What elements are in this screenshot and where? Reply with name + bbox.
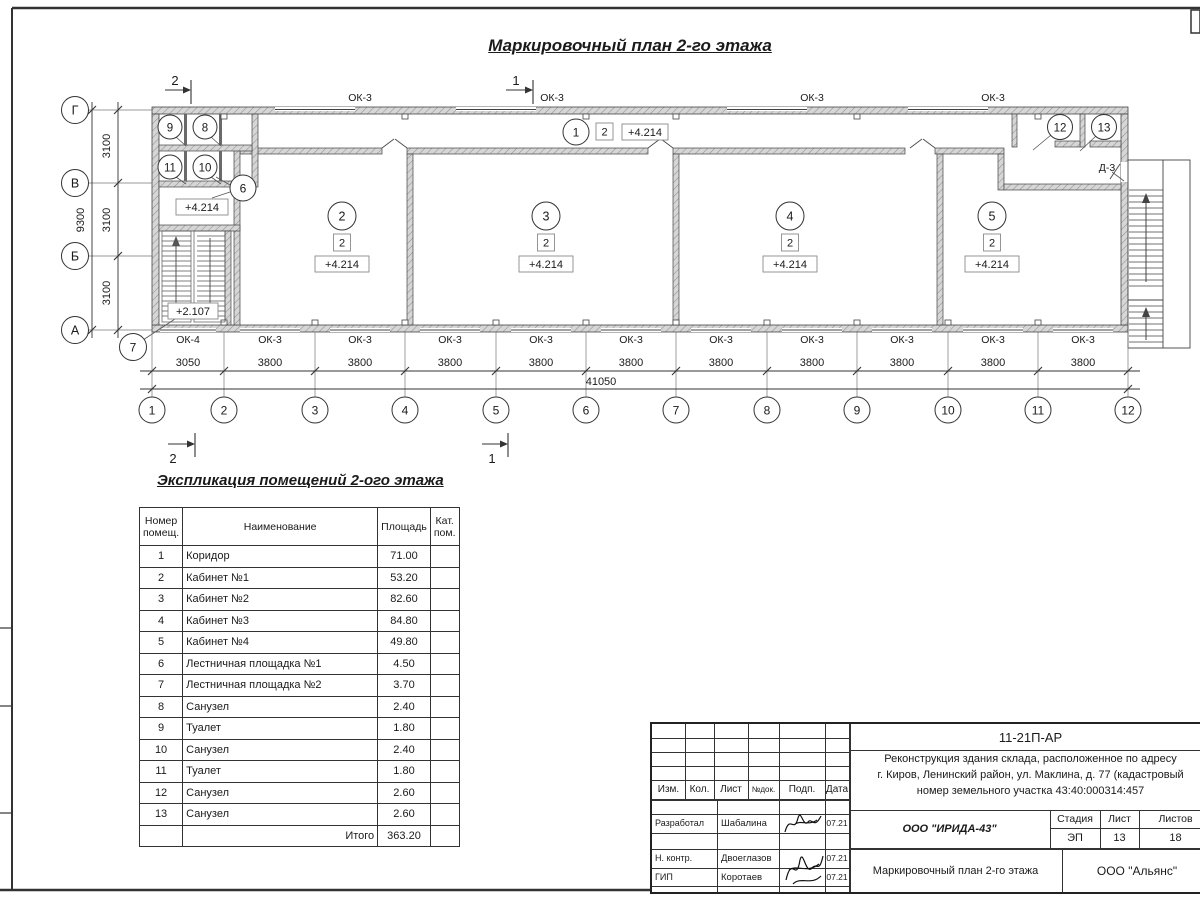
section-2-bottom-label: 2 <box>169 451 176 466</box>
tb-row3-role: ГИП <box>652 868 720 886</box>
category-mark: 2 <box>601 127 607 139</box>
total-area: 363.20 <box>378 825 431 847</box>
room-name: Санузел <box>183 739 378 761</box>
elevation-mark: +4.214 <box>529 259 563 271</box>
room-number: 10 <box>199 163 212 175</box>
axis-letter: А <box>71 324 80 338</box>
axis-number: 11 <box>1032 404 1045 418</box>
table-row: 12Санузел2.60 <box>140 782 460 804</box>
room-area: 2.40 <box>378 696 431 718</box>
h-dim: 3050 <box>176 357 200 369</box>
room-name: Санузел <box>183 804 378 826</box>
room-name: Туалет <box>183 718 378 740</box>
table-row: 8Санузел2.40 <box>140 696 460 718</box>
schedule-total-row: Итого 363.20 <box>140 825 460 847</box>
tb-col-kol: Кол. <box>685 780 714 799</box>
room-number: 9 <box>167 123 173 135</box>
tb-sheets-value: 18 <box>1139 828 1200 848</box>
elevation-mark: +4.214 <box>628 127 662 139</box>
room-cat <box>430 567 459 589</box>
axis-number: 7 <box>673 404 680 418</box>
axis-number: 5 <box>493 404 500 418</box>
window-label: ОК-3 <box>1071 334 1095 346</box>
tb-col-dok: №док. <box>748 780 779 799</box>
tb-row2-role: Н. контр. <box>652 849 720 868</box>
room-cat <box>430 610 459 632</box>
h-dim: 3800 <box>529 357 553 369</box>
table-row: 4Кабинет №384.80 <box>140 610 460 632</box>
h-dim: 3800 <box>800 357 824 369</box>
category-mark: 2 <box>989 238 995 250</box>
room-cat <box>430 675 459 697</box>
room-number: 1 <box>573 126 580 140</box>
axis-letter: Г <box>72 104 79 118</box>
room-area: 82.60 <box>378 589 431 611</box>
category-mark: 2 <box>543 238 549 250</box>
room-num: 1 <box>140 546 183 568</box>
room-number: 11 <box>164 163 176 175</box>
room-number: 5 <box>989 210 996 224</box>
window-label: ОК-3 <box>438 334 462 346</box>
axis-number: 8 <box>764 404 771 418</box>
tb-sheet-label: Лист <box>1100 810 1139 828</box>
tb-company: ООО "ИРИДА-43" <box>849 810 1050 848</box>
title-block: Изм. Кол. Лист №док. Подп. Дата Разработ… <box>650 722 1200 894</box>
room-number: 12 <box>1054 123 1067 135</box>
room-name: Кабинет №3 <box>183 610 378 632</box>
tb-doc-title: Маркировочный план 2-го этажа <box>849 850 1062 892</box>
window-label: ОК-3 <box>348 92 372 104</box>
tb-row1-date: 07.21 <box>825 814 849 833</box>
room-area: 1.80 <box>378 718 431 740</box>
table-row: 1Коридор71.00 <box>140 546 460 568</box>
room-cat <box>430 632 459 654</box>
room-num: 4 <box>140 610 183 632</box>
axis-letter: Б <box>71 250 79 264</box>
table-row: 13Санузел2.60 <box>140 804 460 826</box>
room-cat <box>430 739 459 761</box>
room-cat <box>430 653 459 675</box>
window-label: ОК-3 <box>890 334 914 346</box>
tb-row3-name: Коротаев <box>718 868 782 886</box>
room-area: 71.00 <box>378 546 431 568</box>
room-cat <box>430 782 459 804</box>
room-cat <box>430 546 459 568</box>
room-number: 7 <box>130 341 137 355</box>
window-label: ОК-3 <box>540 92 564 104</box>
room-name: Лестничная площадка №1 <box>183 653 378 675</box>
tb-sheet-value: 13 <box>1100 828 1139 848</box>
h-dim: 3800 <box>348 357 372 369</box>
room-num: 10 <box>140 739 183 761</box>
tb-col-data: Дата <box>825 780 849 799</box>
room-num: 2 <box>140 567 183 589</box>
axis-number: 9 <box>854 404 861 418</box>
room-number: 2 <box>339 210 346 224</box>
room-number: 8 <box>202 123 208 135</box>
axis-number-bubbles <box>139 397 1141 423</box>
category-mark: 2 <box>339 238 345 250</box>
room-area: 4.50 <box>378 653 431 675</box>
axis-letter: В <box>71 177 79 191</box>
axis-number: 6 <box>583 404 590 418</box>
v-dim: 3100 <box>101 208 113 232</box>
interior-walls <box>159 114 1121 325</box>
h-dim: 3800 <box>438 357 462 369</box>
room-num: 6 <box>140 653 183 675</box>
window-label: ОК-3 <box>529 334 553 346</box>
room-area: 1.80 <box>378 761 431 783</box>
col-header-num: Номер помещ. <box>140 508 183 546</box>
room-name: Кабинет №1 <box>183 567 378 589</box>
window-label: ОК-3 <box>709 334 733 346</box>
room-name: Кабинет №2 <box>183 589 378 611</box>
elevation-mark: +2.107 <box>176 306 210 318</box>
plan-title: Маркировочный план 2-го этажа <box>430 36 830 56</box>
v-dim: 3100 <box>101 281 113 305</box>
room-name: Лестничная площадка №2 <box>183 675 378 697</box>
table-row: 7Лестничная площадка №23.70 <box>140 675 460 697</box>
room-num: 5 <box>140 632 183 654</box>
axis-number: 3 <box>312 404 319 418</box>
window-label: ОК-3 <box>981 334 1005 346</box>
signature-1 <box>781 810 825 836</box>
room-number: 6 <box>240 182 247 196</box>
table-row: 11Туалет1.80 <box>140 761 460 783</box>
v-dim: 3100 <box>101 134 113 158</box>
section-2-top-label: 2 <box>171 73 178 88</box>
axis-number: 12 <box>1121 404 1135 418</box>
room-area: 2.40 <box>378 739 431 761</box>
table-row: 6Лестничная площадка №14.50 <box>140 653 460 675</box>
room-num: 12 <box>140 782 183 804</box>
window-label: ОК-3 <box>800 92 824 104</box>
room-num: 13 <box>140 804 183 826</box>
room-name: Санузел <box>183 782 378 804</box>
room-number: 4 <box>787 210 794 224</box>
h-dim: 3800 <box>981 357 1005 369</box>
v-dim-total: 9300 <box>75 208 87 232</box>
window-label: ОК-3 <box>800 334 824 346</box>
room-number: 3 <box>543 210 550 224</box>
tb-sheets-label: Листов <box>1139 810 1200 828</box>
h-dim: 3800 <box>258 357 282 369</box>
tb-col-list: Лист <box>714 780 748 799</box>
schedule-header-row: Номер помещ. Наименование Площадь Кат. п… <box>140 508 460 546</box>
total-empty-cell <box>140 825 183 847</box>
elevation-mark: +4.214 <box>975 259 1009 271</box>
window-label: ОК-3 <box>981 92 1005 104</box>
room-area: 53.20 <box>378 567 431 589</box>
tb-col-izm: Изм. <box>652 780 685 799</box>
room-area: 2.60 <box>378 804 431 826</box>
tb-project-line3: номер земельного участка 43:40:000314:45… <box>852 783 1200 799</box>
room-schedule-table: Номер помещ. Наименование Площадь Кат. п… <box>139 507 460 847</box>
room-cat <box>430 718 459 740</box>
col-header-cat: Кат. пом. <box>430 508 459 546</box>
h-dim: 3800 <box>619 357 643 369</box>
axis-number: 10 <box>941 404 955 418</box>
h-dim: 3800 <box>709 357 733 369</box>
room-area: 49.80 <box>378 632 431 654</box>
table-row: 5Кабинет №449.80 <box>140 632 460 654</box>
tb-project-line2: г. Киров, Ленинский район, ул. Маклина, … <box>852 767 1200 783</box>
table-row: 10Санузел2.40 <box>140 739 460 761</box>
tb-row1-name: Шабалина <box>718 814 782 833</box>
tb-row2-name: Двоеглазов <box>718 849 782 868</box>
h-dim: 3800 <box>890 357 914 369</box>
room-name: Коридор <box>183 546 378 568</box>
table-row: 2Кабинет №153.20 <box>140 567 460 589</box>
window-label: ОК-3 <box>348 334 372 346</box>
room-cat <box>430 696 459 718</box>
room-name: Туалет <box>183 761 378 783</box>
tb-col-podp: Подп. <box>779 780 825 799</box>
axis-number: 2 <box>221 404 228 418</box>
tb-line <box>652 738 849 739</box>
h-dim: 3800 <box>1071 357 1095 369</box>
category-mark: 2 <box>787 238 793 250</box>
drawing-sheet: { "sheet": { "title": "Маркировочный пла… <box>0 0 1200 900</box>
tb-row3-date: 07.21 <box>825 868 849 886</box>
tb-line <box>652 799 849 801</box>
schedule-title: Экспликация помещений 2-ого этажа <box>157 472 444 489</box>
table-row: 9Туалет1.80 <box>140 718 460 740</box>
leader-lines <box>143 135 1124 340</box>
axis-number: 1 <box>149 404 156 418</box>
room-num: 8 <box>140 696 183 718</box>
col-header-name: Наименование <box>183 508 378 546</box>
room-num: 3 <box>140 589 183 611</box>
tb-stage-value: ЭП <box>1050 828 1100 848</box>
window-label: ОК-3 <box>258 334 282 346</box>
tb-line <box>652 766 849 767</box>
tb-line <box>652 752 849 753</box>
total-label: Итого <box>183 825 378 847</box>
external-stair <box>1128 160 1190 348</box>
elevation-mark: +4.214 <box>325 259 359 271</box>
col-header-area: Площадь <box>378 508 431 546</box>
tb-row1-role: Разработал <box>652 814 720 833</box>
h-dim-total: 41050 <box>586 376 617 388</box>
tb-row2-date: 07.21 <box>825 849 849 868</box>
tb-doc-number: 11-21П-АР <box>849 724 1200 750</box>
total-cat-cell <box>430 825 459 847</box>
window-label: ОК-4 <box>176 334 200 346</box>
window-label: ОК-3 <box>619 334 643 346</box>
tb-org: ООО "Альянс" <box>1062 850 1200 892</box>
elevation-mark: +4.214 <box>773 259 807 271</box>
door-label: Д-3 <box>1099 162 1116 174</box>
section-1-bottom-label: 1 <box>488 451 495 466</box>
tb-project-line1: Реконструкция здания склада, расположенн… <box>852 751 1200 767</box>
room-num: 7 <box>140 675 183 697</box>
room-area: 3.70 <box>378 675 431 697</box>
room-cat <box>430 761 459 783</box>
room-cat <box>430 589 459 611</box>
room-number: 13 <box>1098 123 1111 135</box>
table-row: 3Кабинет №282.60 <box>140 589 460 611</box>
room-num: 9 <box>140 718 183 740</box>
room-area: 84.80 <box>378 610 431 632</box>
room-cat <box>430 804 459 826</box>
room-name: Кабинет №4 <box>183 632 378 654</box>
signature-2 <box>781 846 825 888</box>
room-name: Санузел <box>183 696 378 718</box>
tb-stage-label: Стадия <box>1050 810 1100 828</box>
room-area: 2.60 <box>378 782 431 804</box>
room-num: 11 <box>140 761 183 783</box>
elevation-mark: +4.214 <box>185 202 219 214</box>
axis-number: 4 <box>402 404 409 418</box>
section-1-top-label: 1 <box>512 73 519 88</box>
